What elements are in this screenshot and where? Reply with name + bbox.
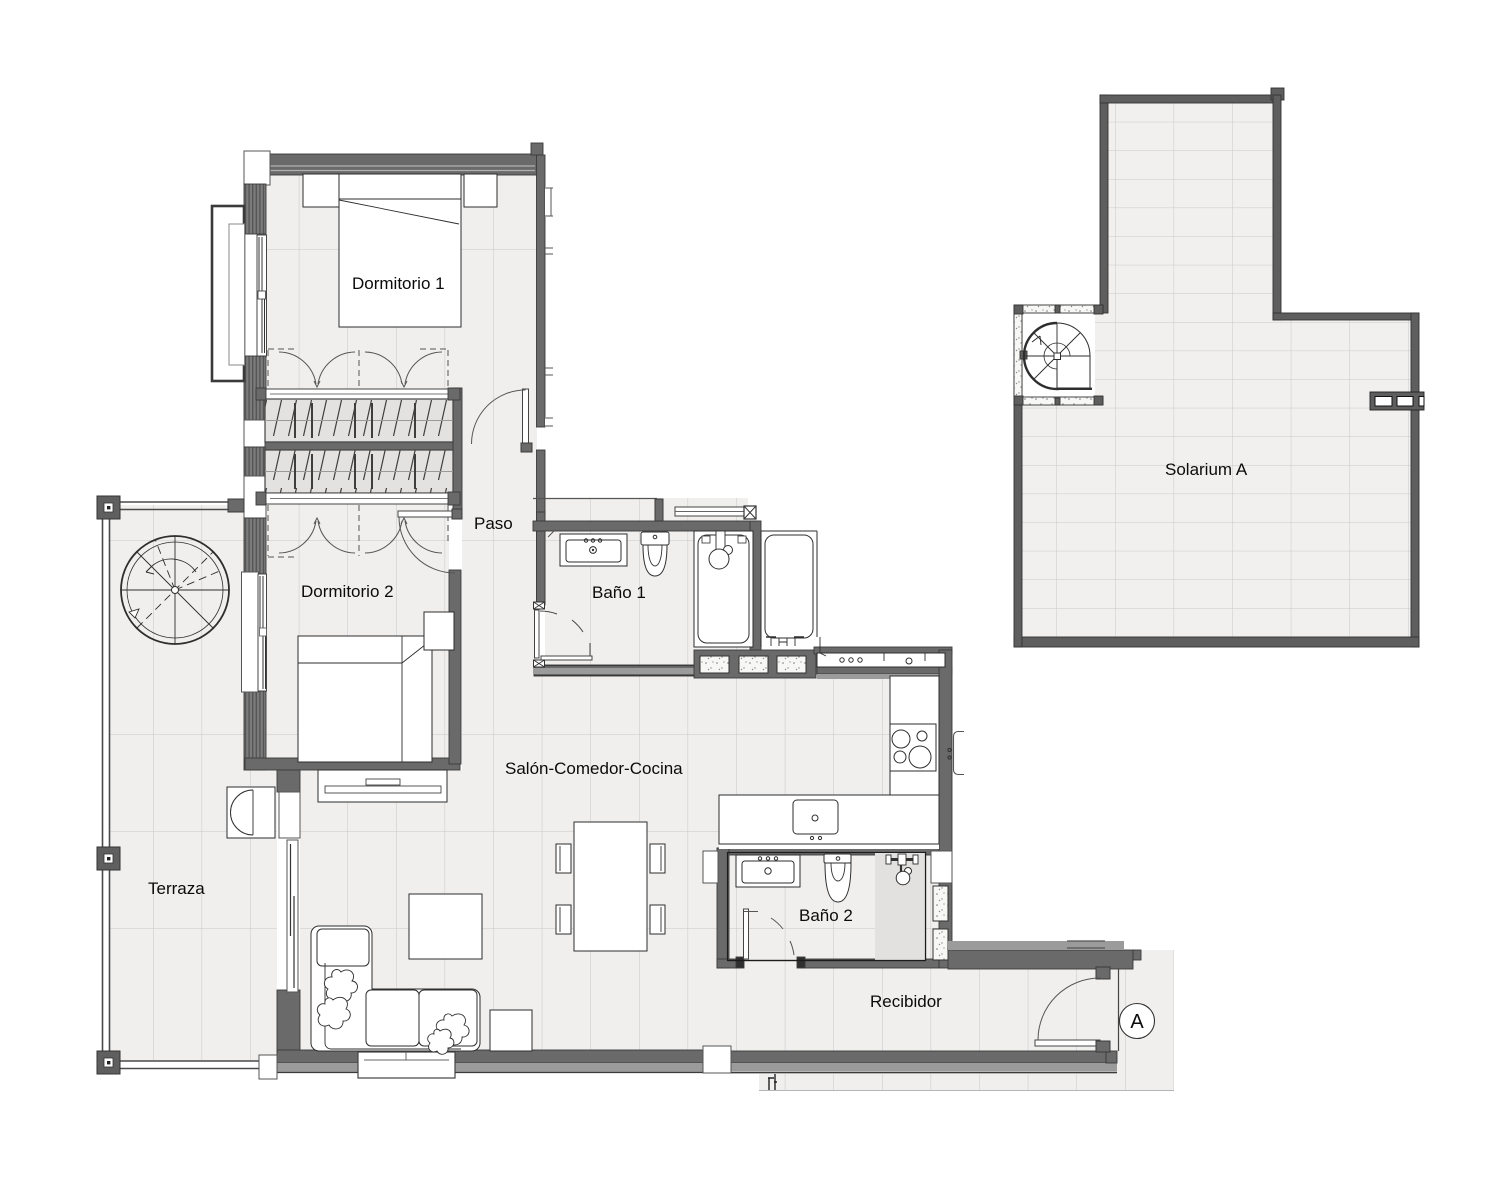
svg-text:Salón-Comedor-Cocina: Salón-Comedor-Cocina (505, 759, 683, 778)
svg-text:Dormitorio 1: Dormitorio 1 (352, 274, 445, 293)
svg-text:Baño 1: Baño 1 (592, 583, 646, 602)
svg-text:A: A (1130, 1011, 1144, 1033)
svg-text:Paso: Paso (474, 514, 513, 533)
svg-text:Dormitorio 2: Dormitorio 2 (301, 582, 394, 601)
svg-text:Recibidor: Recibidor (870, 992, 942, 1011)
svg-text:Solarium A: Solarium A (1165, 460, 1248, 479)
svg-text:Baño 2: Baño 2 (799, 906, 853, 925)
svg-text:Terraza: Terraza (148, 879, 205, 898)
